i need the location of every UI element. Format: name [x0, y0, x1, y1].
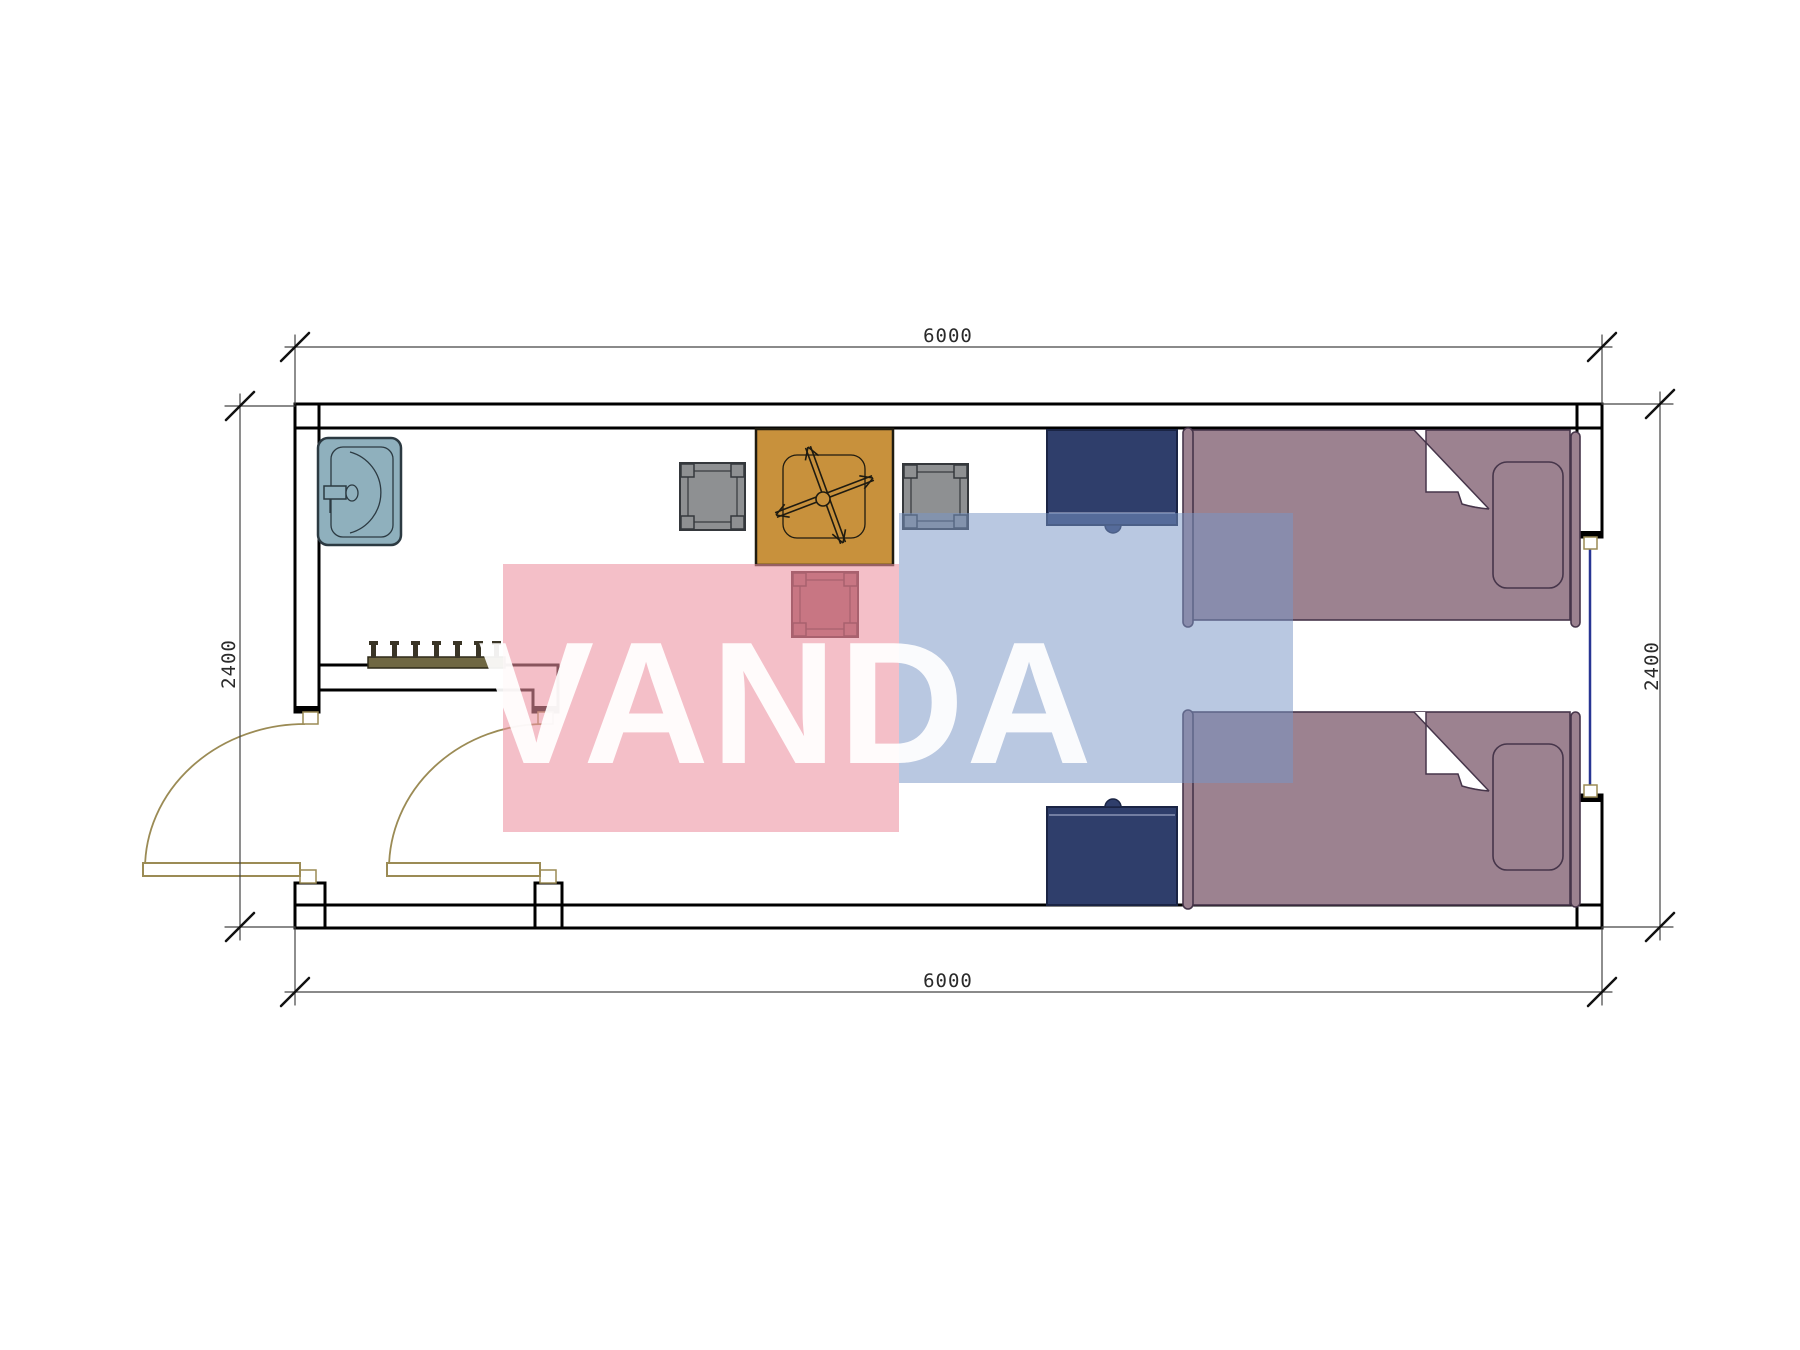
dim-label-right: 2400 — [1641, 641, 1663, 691]
door-leaf-left — [143, 863, 300, 876]
dimension-top: 6000 — [281, 325, 1616, 404]
dim-label-bottom: 6000 — [923, 970, 973, 992]
watermark-text: VANDA — [478, 605, 1094, 800]
dim-label-left: 2400 — [218, 639, 240, 689]
floor-plan-canvas: 6000 6000 2400 2400 — [0, 0, 1800, 1350]
dimension-right: 2400 — [1602, 390, 1674, 941]
door-swing-arc-left — [145, 724, 305, 869]
window-frame-square — [1584, 537, 1597, 549]
window-frame-square — [1584, 785, 1597, 797]
drain-icon — [346, 485, 358, 501]
pillow-icon — [1493, 744, 1563, 870]
dimension-left: 2400 — [218, 392, 295, 941]
dim-label-top: 6000 — [923, 325, 973, 347]
dimension-bottom: 6000 — [281, 927, 1616, 1006]
wall-top — [295, 404, 1602, 428]
wall-bottom — [295, 905, 1602, 928]
washbasin-icon — [318, 438, 401, 545]
nightstand-bottom-icon — [1047, 799, 1177, 905]
wall-left — [295, 404, 319, 712]
window-right — [1584, 537, 1597, 797]
door-frame-square — [300, 870, 316, 883]
door-frame-square — [540, 870, 556, 883]
stool-gray-left-icon — [680, 463, 745, 530]
pillow-icon — [1493, 462, 1563, 588]
door-leaf-vestibule — [387, 863, 540, 876]
faucet-icon — [324, 486, 346, 499]
table-icon — [756, 429, 893, 565]
door-frame-square — [303, 712, 318, 724]
